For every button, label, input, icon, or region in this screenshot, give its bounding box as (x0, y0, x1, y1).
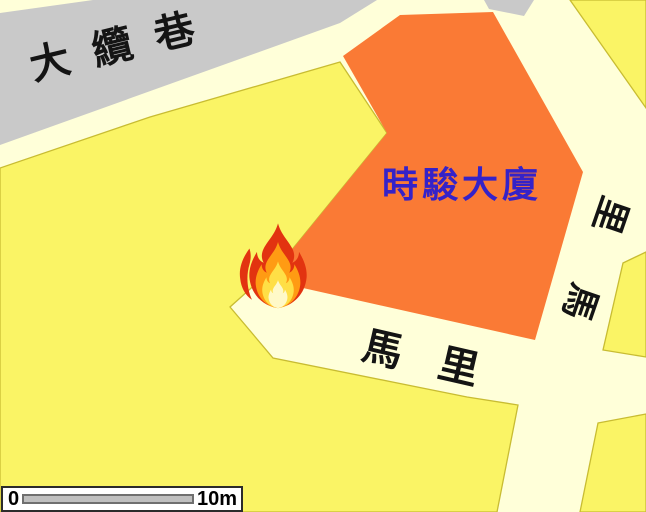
building-name-label: 時駿大廈 (382, 167, 542, 203)
scale-bar: 0 10m (1, 486, 243, 512)
fire-icon (236, 217, 320, 317)
scale-bar-distance-label: 10m (197, 489, 237, 509)
map-viewport[interactable]: 大纜巷 時駿大廈 馬里 里馬 0 10m (0, 0, 646, 512)
scale-bar-line (22, 494, 194, 504)
scale-bar-zero-label: 0 (8, 489, 19, 509)
map-canvas[interactable] (0, 0, 646, 512)
